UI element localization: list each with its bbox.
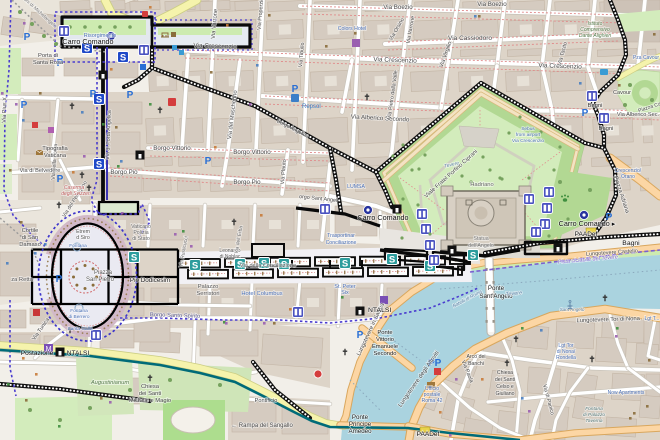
svg-text:Sant Angelo: Sant Angelo: [560, 307, 585, 312]
svg-text:Taverna: Taverna: [585, 418, 602, 424]
svg-text:S: S: [470, 251, 476, 262]
svg-text:PAADef: PAADef: [417, 431, 440, 438]
svg-text:Tipografia: Tipografia: [42, 146, 68, 152]
svg-text:di Stato: di Stato: [132, 236, 150, 242]
svg-text:Bagni: Bagni: [622, 240, 640, 247]
svg-text:Risorgimento: Risorgimento: [84, 33, 116, 39]
svg-text:P: P: [90, 89, 97, 100]
svg-text:Conciliazione: Conciliazione: [326, 240, 357, 246]
svg-text:P: P: [582, 108, 589, 119]
svg-text:Lgt T...: Lgt T...: [645, 316, 660, 322]
svg-text:Carro Comando: Carro Comando: [357, 213, 408, 222]
svg-text:Via della Conciliazione: Via della Conciliazione: [240, 263, 296, 269]
svg-text:Bagni: Bagni: [588, 103, 603, 109]
svg-text:Ponte: Ponte: [377, 330, 392, 336]
svg-text:S: S: [96, 160, 102, 171]
svg-text:S: S: [389, 255, 395, 266]
svg-text:Cortile: Cortile: [22, 228, 39, 234]
svg-text:Colors Hotel: Colors Hotel: [338, 26, 367, 32]
svg-text:Banchi: Banchi: [468, 361, 484, 367]
svg-text:Hadriano: Hadriano: [470, 182, 494, 188]
svg-text:LUMSA: LUMSA: [347, 184, 365, 190]
svg-text:P: P: [21, 100, 28, 111]
svg-text:S: S: [120, 53, 126, 64]
svg-text:Via di Belvedere: Via di Belvedere: [20, 168, 61, 174]
svg-text:NTALSI: NTALSI: [368, 307, 391, 314]
svg-text:Now Apartments: Now Apartments: [608, 390, 645, 396]
svg-text:Fontana: Fontana: [585, 406, 603, 412]
svg-text:Carro Comando ▸: Carro Comando ▸: [559, 219, 616, 228]
svg-text:Via Boezio: Via Boezio: [477, 1, 507, 8]
svg-text:PAADef: PAADef: [575, 231, 598, 238]
svg-text:Emanuele: Emanuele: [372, 344, 398, 350]
svg-text:P: P: [127, 90, 134, 101]
svg-text:di Palazzo: di Palazzo: [583, 412, 605, 418]
svg-text:NTALSI: NTALSI: [67, 350, 90, 357]
svg-text:S: S: [342, 259, 348, 270]
svg-text:P: P: [205, 156, 212, 167]
svg-text:San Pietro: San Pietro: [86, 277, 115, 283]
svg-text:Celso e: Celso e: [496, 384, 514, 390]
svg-text:za Retta: za Retta: [11, 277, 33, 283]
svg-text:dei Santi: dei Santi: [495, 377, 515, 383]
svg-text:Ponte: Ponte: [352, 414, 369, 421]
svg-text:dei Santi: dei Santi: [139, 391, 162, 397]
svg-text:Hotel Columbus: Hotel Columbus: [241, 291, 282, 297]
svg-text:S: S: [96, 95, 102, 106]
svg-text:Via Boezio: Via Boezio: [383, 4, 413, 11]
svg-text:Damaso: Damaso: [19, 242, 41, 248]
svg-text:di San: di San: [22, 235, 38, 241]
svg-text:Borgo Vittorio: Borgo Vittorio: [153, 145, 191, 152]
svg-text:Rondella: Rondella: [556, 355, 576, 361]
svg-text:Six: Six: [341, 290, 349, 296]
svg-text:Piazza: Piazza: [94, 270, 113, 276]
svg-text:Serristori: Serristori: [196, 291, 219, 297]
svg-text:Sebus: Sebus: [521, 126, 535, 132]
svg-text:Michele e Magio: Michele e Magio: [129, 398, 171, 404]
svg-text:P: P: [24, 32, 31, 43]
svg-text:Palazzo: Palazzo: [198, 284, 219, 290]
svg-text:Arco dei: Arco dei: [466, 354, 485, 360]
svg-text:di Berrero: di Berrero: [68, 314, 89, 320]
svg-text:Santa Rosa: Santa Rosa: [33, 60, 64, 66]
svg-text:Orano: Orano: [621, 174, 635, 180]
svg-text:Santa Galla: Santa Galla: [67, 326, 92, 332]
svg-text:Ponte: Ponte: [488, 285, 505, 292]
svg-text:Statua: Statua: [473, 236, 488, 242]
svg-text:Pza Cavour: Pza Cavour: [633, 55, 659, 61]
svg-text:Vittorio: Vittorio: [376, 337, 394, 343]
svg-text:Pontificio: Pontificio: [255, 398, 278, 404]
svg-text:Borgo Pio: Borgo Pio: [110, 169, 138, 176]
svg-text:degli Svizzeri: degli Svizzeri: [61, 191, 91, 197]
svg-text:Roma 42: Roma 42: [421, 398, 442, 404]
svg-text:P: P: [57, 174, 64, 185]
svg-text:d Siro: d Siro: [76, 235, 90, 241]
svg-text:Amedeo: Amedeo: [348, 428, 372, 435]
svg-text:Porta di: Porta di: [38, 53, 58, 59]
svg-text:Bagni: Bagni: [599, 126, 614, 132]
svg-text:Giuliano: Giuliano: [495, 391, 514, 397]
svg-text:Borgo Vittorio: Borgo Vittorio: [233, 149, 271, 156]
svg-text:Fontana: Fontana: [70, 308, 88, 314]
svg-text:Principe: Principe: [349, 421, 372, 428]
svg-text:Trasportinar: Trasportinar: [327, 233, 355, 239]
svg-text:Via Crescenzio: Via Crescenzio: [512, 138, 545, 144]
svg-text:Borgo Pio: Borgo Pio: [233, 179, 261, 186]
svg-text:Chiesa: Chiesa: [141, 384, 160, 390]
svg-text:Postazione: Postazione: [21, 350, 54, 357]
svg-text:Chiesa: Chiesa: [497, 370, 513, 376]
svg-text:Fontana: Fontana: [69, 243, 87, 249]
svg-text:Augustinianum: Augustinianum: [90, 380, 130, 386]
svg-text:Via Pius X: Via Pius X: [2, 97, 9, 123]
svg-text:← Rampa del Sangallo: ← Rampa del Sangallo: [231, 423, 293, 429]
svg-text:Dante Alighieri: Dante Alighieri: [579, 33, 612, 39]
svg-text:Repsol: Repsol: [302, 104, 321, 110]
svg-text:Via Cassiodoro: Via Cassiodoro: [448, 35, 492, 42]
svg-text:P: P: [56, 274, 63, 285]
svg-text:dell'Angelo: dell'Angelo: [468, 243, 494, 249]
svg-text:from airport: from airport: [516, 132, 541, 138]
svg-text:P: P: [292, 84, 299, 95]
svg-text:S: S: [192, 261, 198, 272]
svg-text:S: S: [131, 253, 137, 264]
svg-text:Secondo: Secondo: [374, 351, 397, 357]
svg-text:Cavour: Cavour: [613, 90, 631, 96]
svg-text:Pio Dodicesim: Pio Dodicesim: [130, 277, 170, 284]
svg-text:Vaticana: Vaticana: [44, 153, 67, 159]
